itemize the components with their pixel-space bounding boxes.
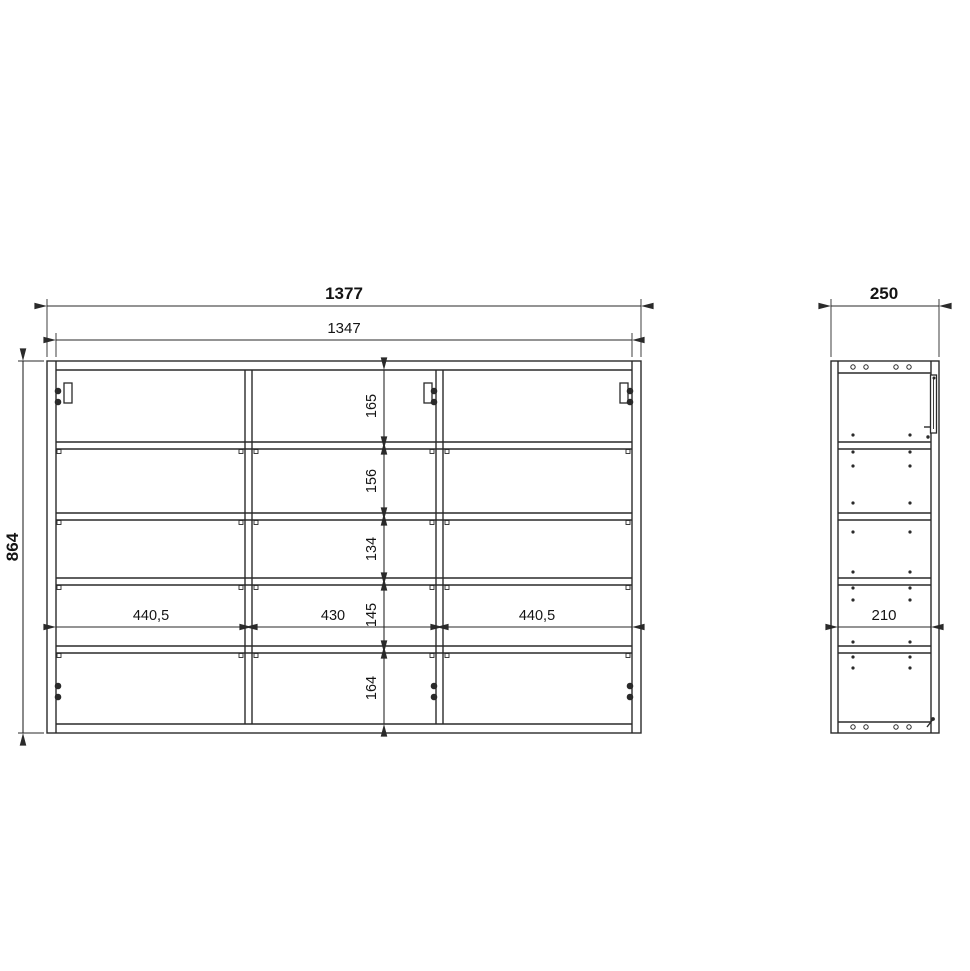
dim-shelf-spacing-3-label: 134 bbox=[364, 537, 380, 561]
dim-overall-depth: 250 bbox=[831, 284, 939, 357]
drill-holes bbox=[851, 365, 911, 729]
dim-shelf-spacing-5-label: 164 bbox=[364, 676, 380, 700]
hinge-arm bbox=[924, 375, 937, 439]
shelf-bracket-marks bbox=[57, 450, 630, 658]
shelf-pin-holes bbox=[851, 433, 911, 669]
dimensions: 1377 1347 864 165 156 134 145 164 bbox=[3, 284, 939, 733]
dim-overall-height-label: 864 bbox=[3, 532, 22, 561]
dim-compartment-width-3-label: 440,5 bbox=[519, 608, 555, 624]
dim-compartment-widths: 440,5 430 440,5 bbox=[56, 608, 632, 627]
front-view bbox=[47, 361, 641, 733]
front-panels bbox=[56, 361, 632, 733]
dim-shelf-spacing-2-label: 156 bbox=[364, 469, 380, 493]
side-panels bbox=[838, 361, 931, 733]
dim-shelf-spacing-4-label: 145 bbox=[364, 603, 380, 627]
technical-drawing: 1377 1347 864 165 156 134 145 164 bbox=[0, 0, 970, 971]
dim-inner-width-label: 1347 bbox=[327, 320, 360, 337]
hinge-plate-right bbox=[620, 383, 628, 403]
dim-overall-depth-label: 250 bbox=[870, 284, 898, 303]
dim-inner-depth: 210 bbox=[838, 607, 931, 627]
hinge-plates bbox=[64, 383, 628, 403]
dim-inner-depth-label: 210 bbox=[871, 607, 896, 624]
drawing-page: 1377 1347 864 165 156 134 145 164 bbox=[0, 0, 970, 971]
dim-compartment-width-1-label: 440,5 bbox=[133, 608, 169, 624]
hinge-plate-middle bbox=[424, 383, 432, 403]
hinge-plate-left bbox=[64, 383, 72, 403]
side-outline bbox=[831, 361, 939, 733]
dim-overall-width-label: 1377 bbox=[325, 284, 363, 303]
dim-shelf-spacings: 165 156 134 145 164 bbox=[364, 370, 384, 724]
dim-compartment-width-2-label: 430 bbox=[321, 608, 345, 624]
front-outline bbox=[47, 361, 641, 733]
dim-overall-height: 864 bbox=[3, 361, 44, 733]
side-view bbox=[831, 361, 939, 733]
dim-inner-width: 1347 bbox=[56, 320, 632, 357]
dim-shelf-spacing-1-label: 165 bbox=[364, 394, 380, 418]
front-dividers bbox=[245, 370, 443, 724]
